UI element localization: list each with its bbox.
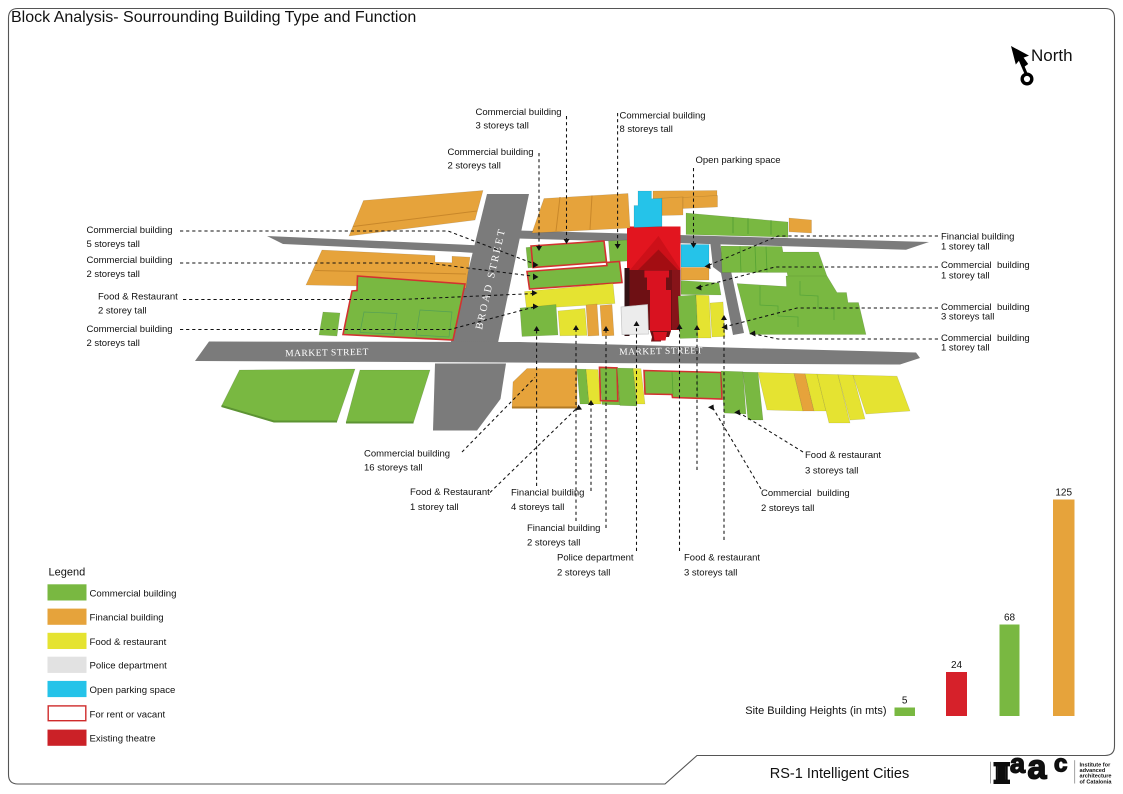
svg-text:Commercial building: Commercial building	[761, 488, 850, 499]
svg-text:For rent or vacant: For rent or vacant	[90, 709, 166, 720]
svg-text:Open parking space: Open parking space	[90, 685, 176, 696]
svg-text:2 storey tall: 2 storey tall	[98, 306, 147, 317]
svg-text:Commercial building: Commercial building	[87, 225, 173, 236]
svg-text:1 storey tall: 1 storey tall	[941, 343, 990, 354]
svg-text:Commercial building: Commercial building	[476, 107, 562, 118]
svg-text:1 storey tall: 1 storey tall	[941, 271, 990, 282]
svg-text:Financial building: Financial building	[90, 613, 164, 624]
svg-text:2 storeys tall: 2 storeys tall	[448, 161, 501, 172]
svg-text:2 storeys tall: 2 storeys tall	[761, 503, 814, 514]
svg-text:2 storeys tall: 2 storeys tall	[527, 538, 580, 549]
svg-text:Site Building Heights (in mts): Site Building Heights (in mts)	[745, 705, 886, 717]
svg-text:Commercial building: Commercial building	[941, 260, 1030, 271]
svg-text:a: a	[1010, 749, 1026, 779]
svg-text:125: 125	[1055, 488, 1072, 499]
svg-text:Commercial building: Commercial building	[620, 111, 706, 122]
svg-text:RS-1 Intelligent Cities: RS-1 Intelligent Cities	[770, 766, 909, 782]
svg-text:of Catalonia: of Catalonia	[1080, 779, 1113, 785]
svg-text:3 storeys tall: 3 storeys tall	[941, 312, 994, 323]
svg-text:Block Analysis- Sourrounding B: Block Analysis- Sourrounding Building Ty…	[11, 9, 416, 26]
svg-text:Food & restaurant: Food & restaurant	[90, 637, 167, 648]
svg-text:Police department: Police department	[557, 553, 634, 564]
svg-text:MARKET STREET: MARKET STREET	[619, 346, 703, 357]
svg-text:MARKET STREET: MARKET STREET	[285, 348, 369, 359]
svg-text:4 storeys tall: 4 storeys tall	[511, 502, 564, 513]
svg-text:68: 68	[1004, 613, 1016, 624]
svg-text:Police department: Police department	[90, 661, 168, 672]
svg-text:North: North	[1031, 46, 1073, 65]
svg-text:Existing theatre: Existing theatre	[90, 734, 156, 745]
svg-text:Food & Restaurant: Food & Restaurant	[98, 292, 178, 303]
svg-text:Food & restaurant: Food & restaurant	[805, 450, 881, 461]
svg-text:1 storey tall: 1 storey tall	[410, 502, 459, 513]
svg-text:Legend: Legend	[49, 567, 86, 579]
svg-text:Open parking space: Open parking space	[696, 155, 781, 166]
svg-text:Commercial building: Commercial building	[448, 147, 534, 158]
svg-text:16 storeys tall: 16 storeys tall	[364, 463, 423, 474]
svg-text:5 storeys tall: 5 storeys tall	[87, 239, 140, 250]
svg-text:3 storeys tall: 3 storeys tall	[684, 568, 737, 579]
svg-text:3 storeys tall: 3 storeys tall	[476, 121, 529, 132]
svg-text:Food & restaurant: Food & restaurant	[684, 553, 760, 564]
svg-text:2 storeys tall: 2 storeys tall	[87, 269, 140, 280]
svg-text:Commercial building: Commercial building	[87, 255, 173, 266]
svg-text:Food & Restaurant: Food & Restaurant	[410, 487, 490, 498]
svg-text:2 storeys tall: 2 storeys tall	[557, 568, 610, 579]
svg-text:Financial building: Financial building	[511, 488, 584, 499]
svg-text:8 storeys tall: 8 storeys tall	[620, 124, 673, 135]
svg-text:c: c	[1054, 751, 1067, 778]
svg-text:5: 5	[902, 696, 908, 707]
svg-text:24: 24	[951, 660, 963, 671]
svg-text:a: a	[1028, 749, 1048, 787]
svg-text:1 storey tall: 1 storey tall	[941, 242, 990, 253]
svg-text:Commercial building: Commercial building	[87, 324, 173, 335]
svg-text:Financial building: Financial building	[527, 523, 600, 534]
svg-text:2 storeys tall: 2 storeys tall	[87, 338, 140, 349]
svg-text:Commercial building: Commercial building	[90, 588, 177, 599]
svg-text:Commercial building: Commercial building	[364, 449, 450, 460]
svg-text:3 storeys tall: 3 storeys tall	[805, 466, 858, 477]
